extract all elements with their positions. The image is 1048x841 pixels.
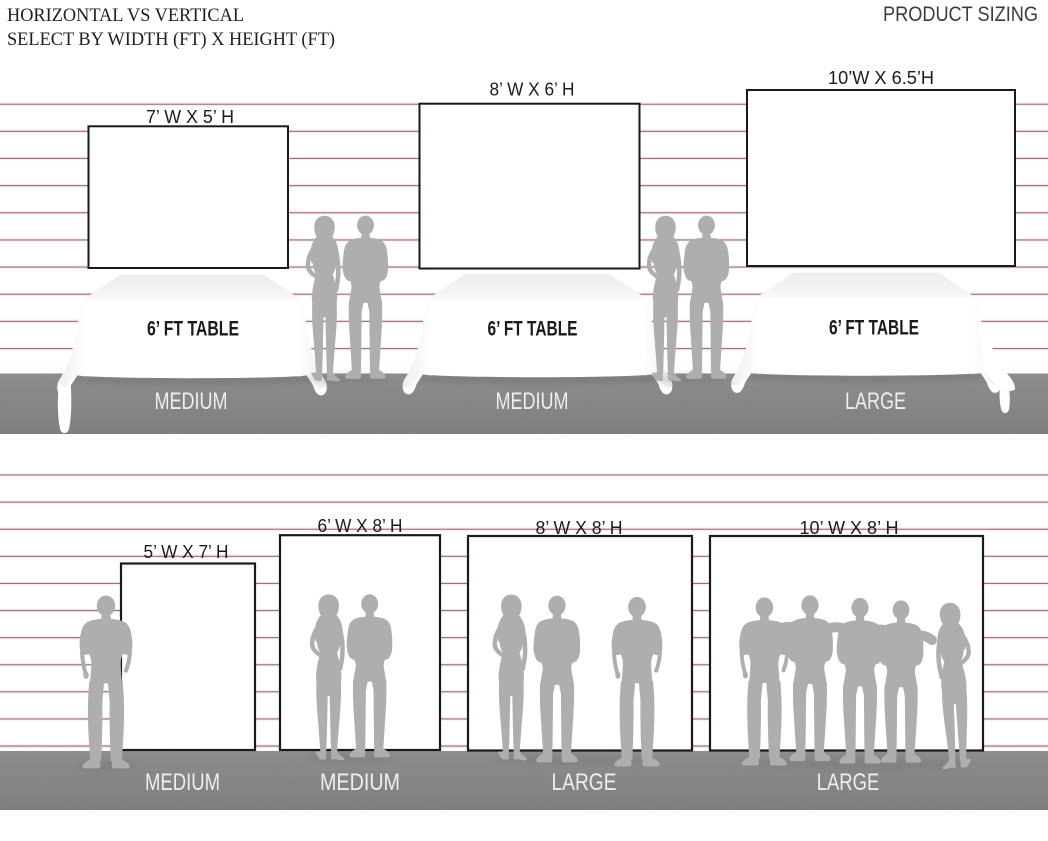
svg-text:MEDIUM: MEDIUM [145,769,220,796]
svg-text:6’ FT TABLE: 6’ FT TABLE [829,317,919,340]
svg-text:LARGE: LARGE [552,769,617,796]
svg-text:LARGE: LARGE [845,388,906,415]
svg-text:10’ W X 8’ H: 10’ W X 8’ H [800,517,899,538]
svg-text:MEDIUM: MEDIUM [155,388,228,415]
svg-text:6’ FT TABLE: 6’ FT TABLE [147,318,239,341]
svg-text:PRODUCT SIZING: PRODUCT SIZING [883,3,1038,26]
svg-text:7’ W X 5’ H: 7’ W X 5’ H [146,106,234,127]
svg-text:MEDIUM: MEDIUM [496,388,569,415]
svg-text:HORIZONTAL VS VERTICAL: HORIZONTAL VS VERTICAL [7,5,244,26]
svg-text:5’ W X 7’ H: 5’ W X 7’ H [144,541,229,562]
svg-text:LARGE: LARGE [817,769,880,796]
svg-text:8’ W X 8’ H: 8’ W X 8’ H [536,517,623,538]
svg-text:SELECT BY WIDTH (FT) X HEIGHT: SELECT BY WIDTH (FT) X HEIGHT (FT) [7,29,335,50]
svg-text:6’ W X 8’ H: 6’ W X 8’ H [318,515,403,536]
svg-text:10’W X 6.5’H: 10’W X 6.5’H [828,67,934,88]
svg-text:6’ FT TABLE: 6’ FT TABLE [488,318,578,341]
svg-text:MEDIUM: MEDIUM [320,769,400,796]
svg-text:8’ W X 6’ H: 8’ W X 6’ H [490,79,575,100]
